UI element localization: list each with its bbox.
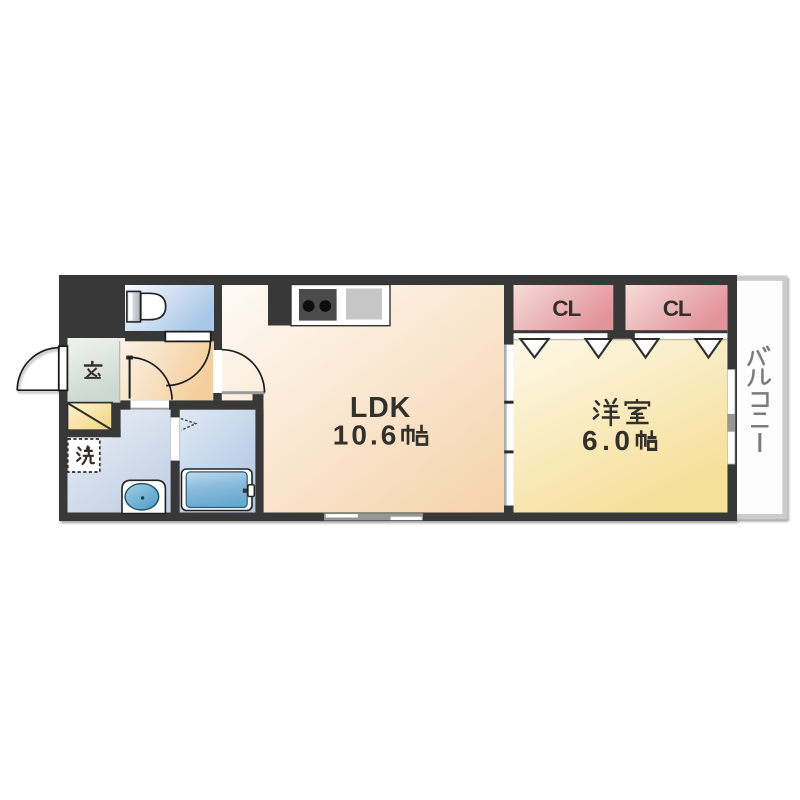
svg-text:CL: CL — [663, 296, 692, 321]
svg-text:CL: CL — [552, 296, 581, 321]
svg-text:10.6: 10.6 — [333, 419, 400, 450]
svg-text:6.0: 6.0 — [582, 425, 634, 456]
